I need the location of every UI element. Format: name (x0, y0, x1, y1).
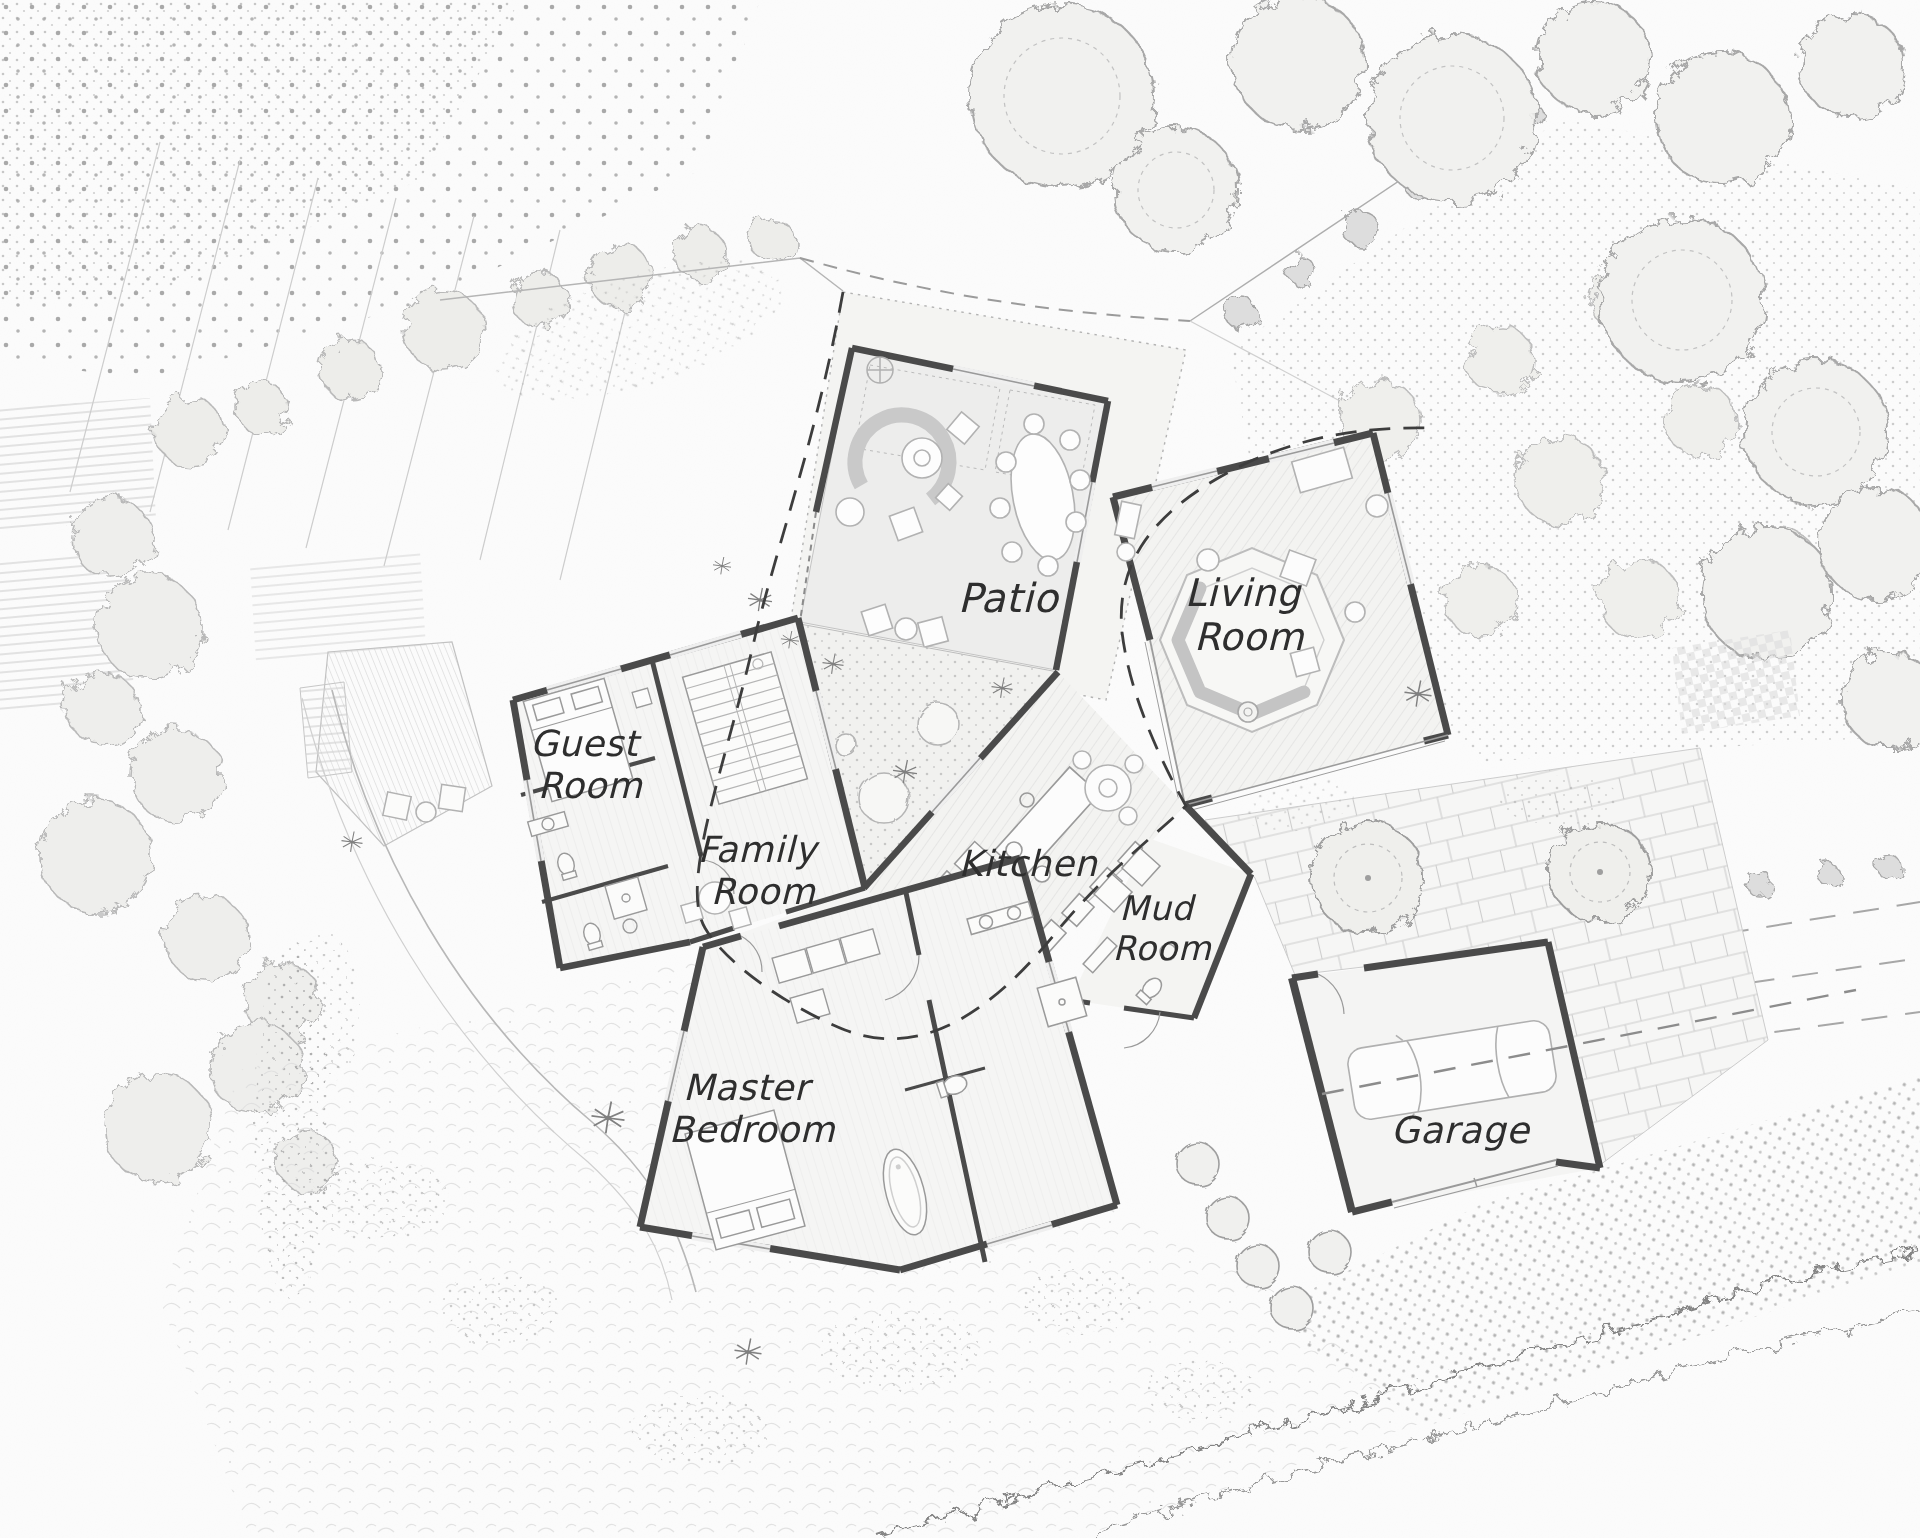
checker-paver-patch (1672, 630, 1800, 734)
site-plan-page: Patio Living Room Guest Room Family Room… (0, 0, 1920, 1538)
fire-pit (1238, 702, 1258, 722)
room-label-master-bedroom: Master Bedroom (669, 1067, 836, 1150)
room-label-family-room: Family Room (698, 829, 829, 912)
courtyard-tree (1312, 822, 1424, 934)
pouf (836, 498, 864, 526)
coffee-table (902, 438, 942, 478)
garden-trellis (250, 552, 426, 662)
deck-steps (300, 682, 352, 778)
patio-drain-icon (867, 357, 893, 383)
room-label-mud-room: Mud Room (1113, 888, 1212, 968)
courtyard-tree (1550, 822, 1650, 922)
room-label-garage: Garage (1391, 1109, 1531, 1152)
room-label-guest-room: Guest Room (530, 723, 650, 806)
room-label-kitchen: Kitchen (959, 843, 1098, 884)
site-plan-drawing: Patio Living Room Guest Room Family Room… (0, 0, 1920, 1538)
room-label-patio: Patio (958, 575, 1061, 621)
room-label-living-room: Living Room (1185, 571, 1314, 659)
